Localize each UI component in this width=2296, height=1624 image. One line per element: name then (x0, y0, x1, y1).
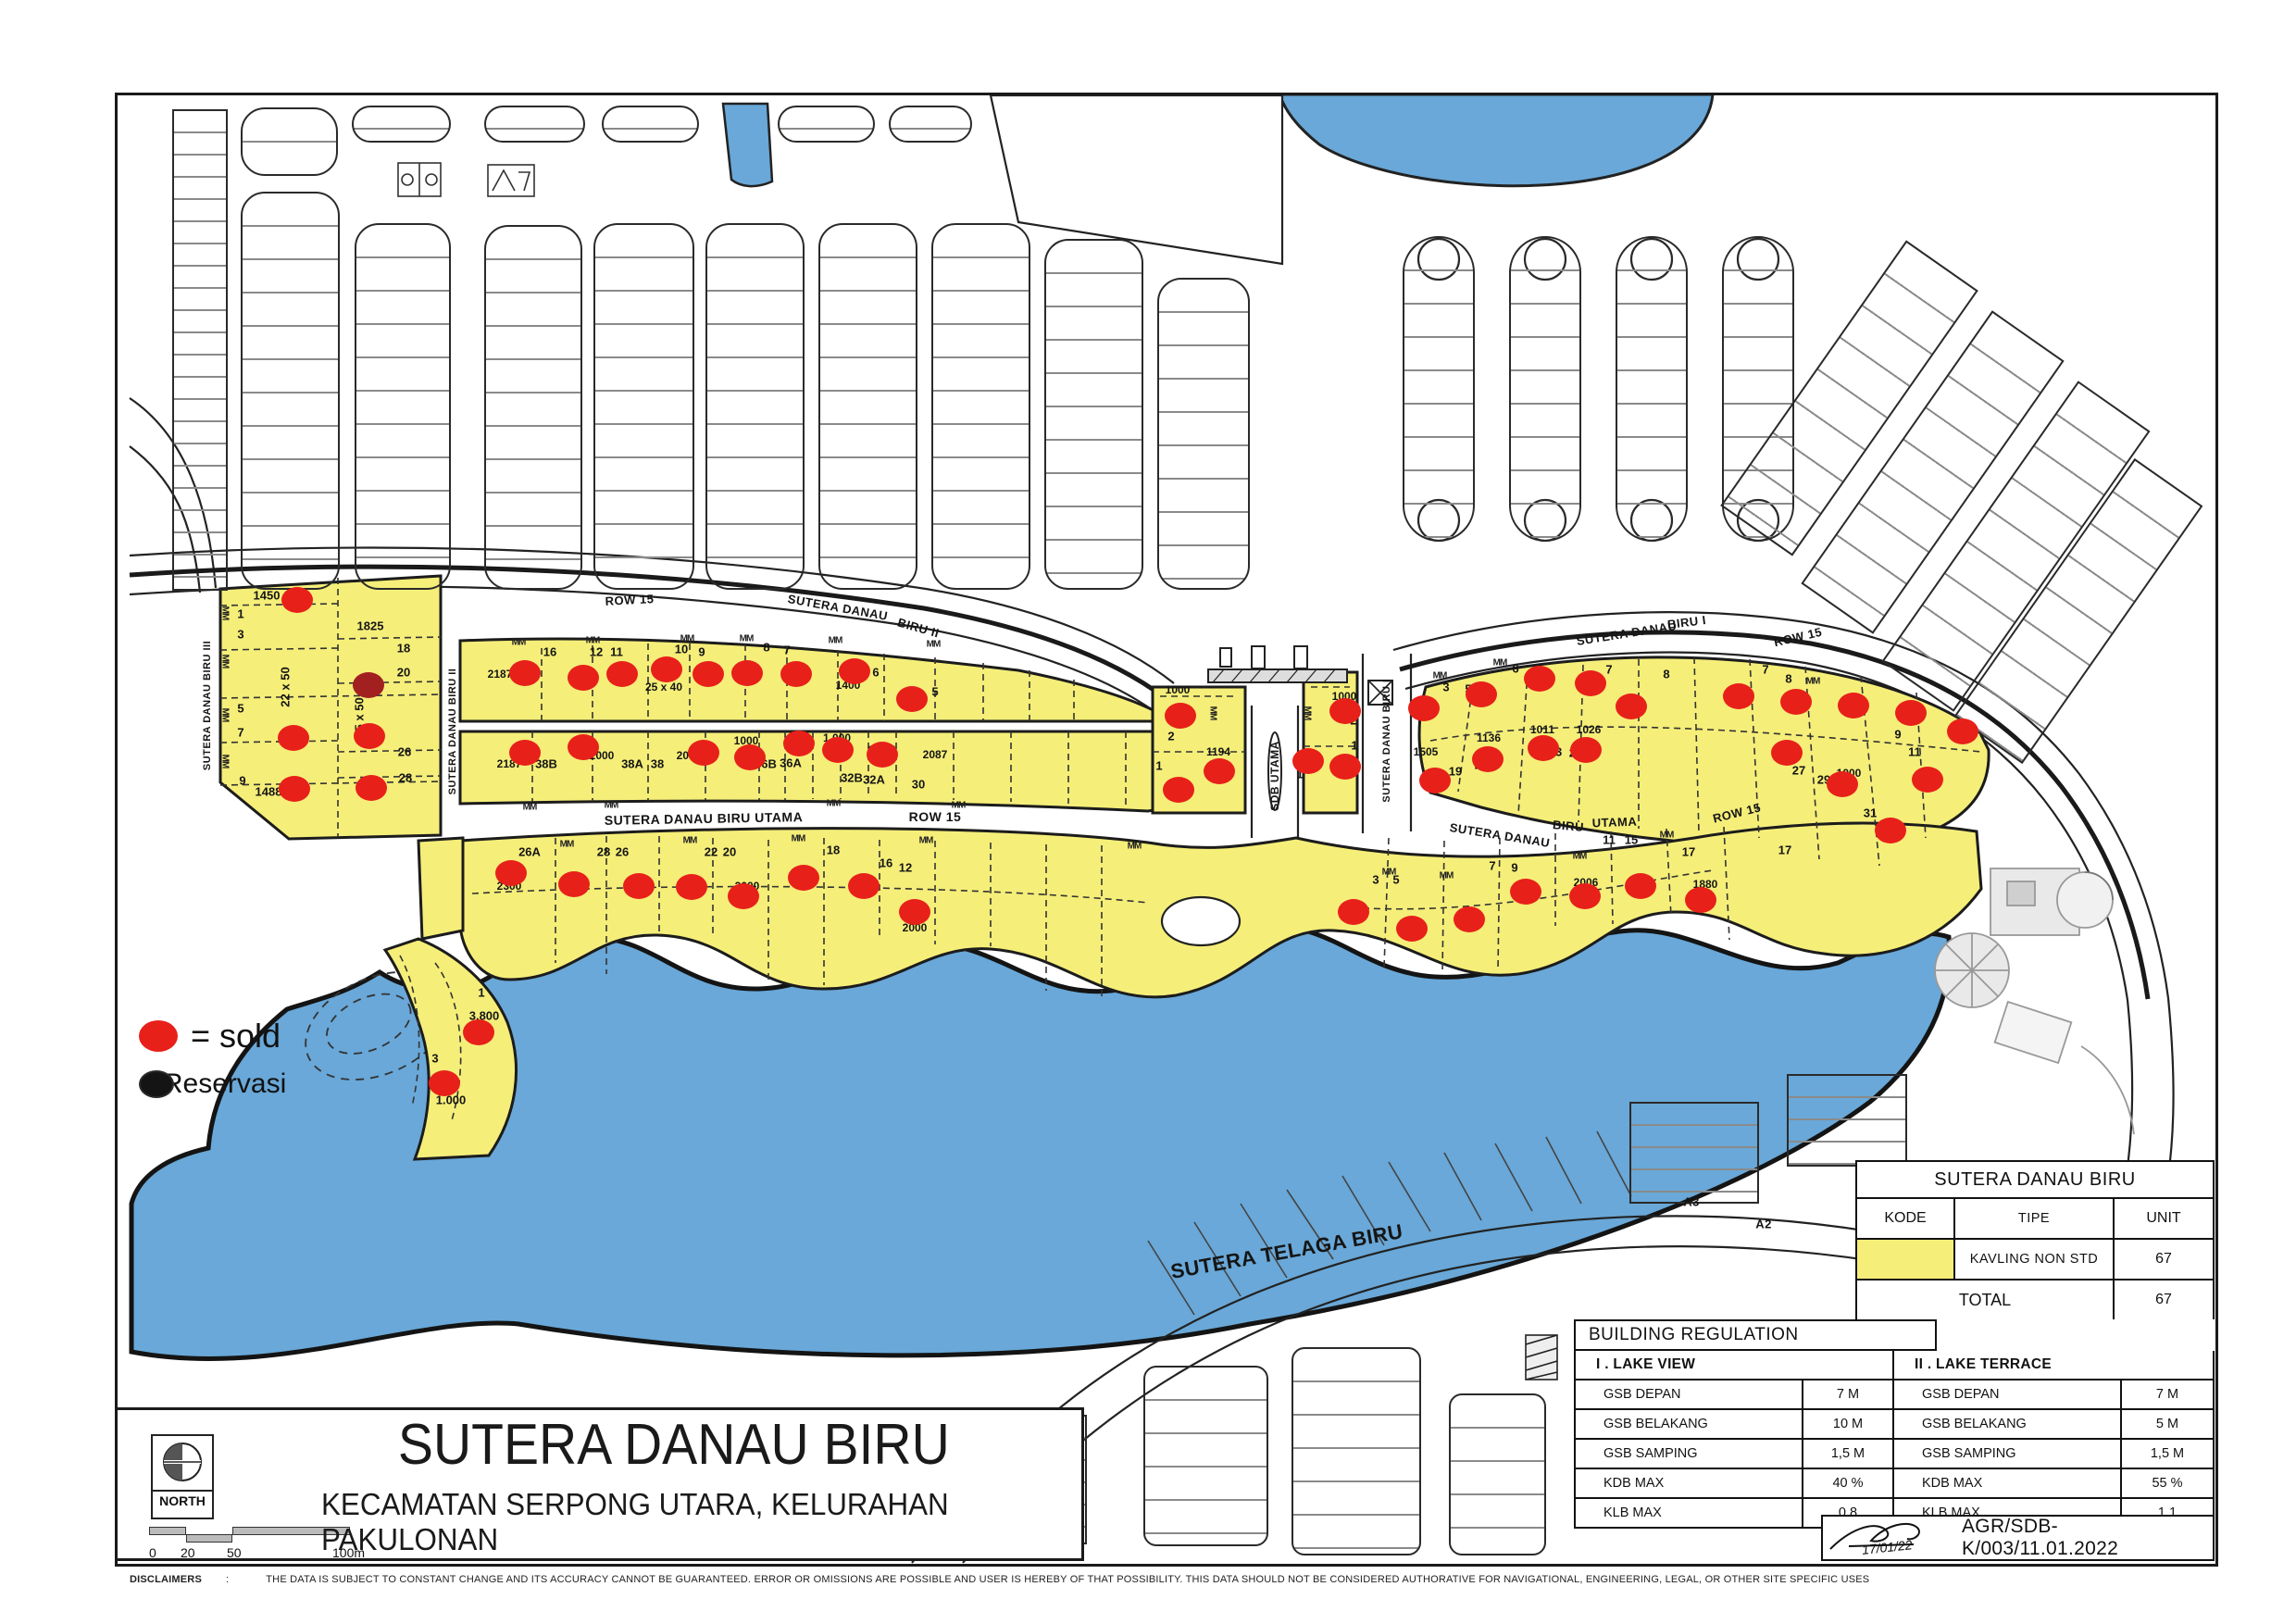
lot-label: 8 (1663, 668, 1669, 681)
lot-label: 9 (239, 774, 245, 788)
lot-label: 7 (783, 643, 790, 657)
lot-label: 22 x 50 (279, 667, 293, 706)
lot-label: 8 (1785, 672, 1791, 686)
sold-marker (731, 660, 763, 686)
sold-marker (1524, 666, 1555, 692)
total-value: 67 (2115, 1280, 2213, 1319)
regulation-row: GSB DEPAN7 M (1894, 1380, 2213, 1410)
project-location: KECAMATAN SERPONG UTARA, KELURAHAN PAKUL… (321, 1487, 1026, 1557)
lot-label: 3 (237, 628, 243, 642)
sold-marker (606, 661, 638, 687)
building-regulation: BUILDING REGULATION I . LAKE VIEWGSB DEP… (1574, 1319, 2215, 1529)
sold-marker (788, 865, 819, 891)
lot-frontage-tick: MM (927, 640, 941, 650)
sold-marker (1838, 693, 1869, 718)
lot-label: 7 (1762, 663, 1768, 677)
lot-label: 18 (397, 642, 410, 656)
signature: 17/01/22 (1823, 1516, 1962, 1560)
lot-label: 1136 (1477, 731, 1501, 744)
sold-marker (1292, 748, 1324, 774)
sold-marker (1204, 758, 1235, 784)
unit-table-title: SUTERA DANAU BIRU (1857, 1162, 2213, 1199)
sold-marker (693, 661, 724, 687)
title-block: NORTH 02050100m SUTERA DANAU BIRU KECAMA… (115, 1407, 1084, 1561)
lot-label: 38 (651, 757, 664, 771)
street-label: SUTERA DANAU BIRU II (447, 668, 458, 795)
street-label: SUTERA DANAU BIRU III (202, 641, 213, 770)
section-name: I . LAKE VIEW (1576, 1351, 1892, 1380)
sold-marker (1163, 777, 1194, 803)
lot-frontage-tick: MM (1128, 842, 1142, 852)
sold-marker (1466, 681, 1497, 707)
lot-label: 7 (1489, 859, 1495, 873)
street-label: SUTERA DANAU (1449, 820, 1552, 850)
approval-box: 17/01/22 AGR/SDB-K/003/11.01.2022 (1821, 1515, 2215, 1561)
regulation-label: GSB BELAKANG (1894, 1410, 2122, 1438)
sold-marker (1616, 693, 1647, 719)
sold-marker (1575, 670, 1606, 696)
lot-label: 8 (763, 641, 769, 655)
lot-label: 1825 (357, 619, 384, 633)
lot-label: 7 (237, 726, 243, 740)
building-regulation-body: I . LAKE VIEWGSB DEPAN7 MGSB BELAKANG10 … (1574, 1351, 2215, 1529)
lot-frontage-tick: MM (1208, 706, 1218, 720)
lot-frontage-tick: MM (523, 803, 537, 813)
lot-label: 2087 (923, 748, 948, 761)
lot-frontage-tick: MM (512, 638, 526, 648)
reservasi-marker-icon (139, 1070, 174, 1098)
sold-marker (568, 665, 599, 691)
lot-label: 26 (398, 745, 411, 759)
building-regulation-title: BUILDING REGULATION (1574, 1319, 1937, 1351)
lot-label: 30 (912, 778, 925, 792)
unit-table-row: KAVLING NON STD 67 (1857, 1240, 2213, 1280)
lot-label: 31 (1864, 806, 1877, 820)
sold-marker (463, 1019, 494, 1045)
regulation-label: GSB SAMPING (1576, 1440, 1803, 1468)
lot-frontage-tick: MM (1806, 677, 1820, 687)
regulation-value: 55 % (2122, 1469, 2213, 1497)
unit-cell: 67 (2115, 1240, 2213, 1279)
sold-marker (356, 775, 387, 801)
col-kode: KODE (1857, 1199, 1955, 1238)
street-label: SUTERA DANAU (787, 592, 889, 623)
regulation-value: 7 M (2122, 1380, 2213, 1408)
legend-sold-label: = sold (191, 1017, 281, 1056)
lot-label: 17 (1778, 843, 1791, 857)
lot-frontage-tick: MM (919, 836, 933, 846)
sold-marker (676, 874, 707, 900)
sold-marker (1528, 735, 1559, 761)
sold-marker (429, 1070, 460, 1096)
lot-label: 20 (397, 666, 410, 680)
street-label: BIRU (1553, 818, 1585, 834)
unit-table-total-row: TOTAL 67 (1857, 1280, 2213, 1319)
lot-label: 1000 (1166, 683, 1191, 696)
lot-label: 12 (590, 645, 603, 659)
sold-marker (1569, 883, 1601, 909)
lot-frontage-tick: MM (560, 840, 574, 850)
lot-label: 19 (1449, 765, 1462, 779)
lot-label: 5 (237, 702, 243, 716)
regulation-label: GSB SAMPING (1894, 1440, 2122, 1468)
sold-marker (509, 660, 541, 686)
sold-marker (1875, 818, 1906, 843)
sold-marker (688, 740, 719, 766)
sold-marker (1329, 754, 1361, 780)
sold-marker (1338, 899, 1369, 925)
lot-frontage-tick: MM (1433, 671, 1447, 681)
lot-frontage-tick: MM (1440, 871, 1454, 881)
lot-label: 11 (1603, 833, 1616, 847)
sold-marker (558, 871, 590, 897)
col-unit: UNIT (2115, 1199, 2213, 1238)
disclaimer-text: THE DATA IS SUBJECT TO CONSTANT CHANGE A… (266, 1574, 1869, 1585)
regulation-row: KDB MAX55 % (1894, 1469, 2213, 1499)
sold-marker (1419, 768, 1451, 793)
title-block-left: NORTH 02050100m (118, 1410, 303, 1558)
lot-label: 15 (1625, 833, 1638, 847)
lot-label: 9 (1511, 861, 1517, 875)
sold-marker (728, 883, 759, 909)
sold-marker (495, 860, 527, 886)
regulation-row: GSB SAMPING1,5 M (1576, 1440, 1892, 1469)
sold-marker (839, 658, 870, 684)
lot-label: 11 (1908, 745, 1921, 759)
kavling-color-swatch (1857, 1240, 1953, 1279)
regulation-label: GSB DEPAN (1576, 1380, 1803, 1408)
street-label: ROW 15 (909, 809, 962, 824)
site-plan-page: ROW 15SUTERA DANAUBIRU IISUTERA DANAUBIR… (0, 0, 2296, 1624)
street-label: ROW 15 (1712, 800, 1763, 825)
project-title: SUTERA DANAU BIRU (398, 1412, 950, 1478)
regulation-section: II . LAKE TERRACEGSB DEPAN7 MGSB BELAKAN… (1894, 1351, 2213, 1527)
lot-frontage-tick: MM (586, 636, 600, 646)
lot-label: 1 (237, 607, 243, 621)
sold-marker (1723, 683, 1754, 709)
sold-marker (354, 723, 385, 749)
lot-label: 1011 (1530, 723, 1554, 736)
sold-marker (568, 734, 599, 760)
lot-label: 9 (1894, 728, 1901, 742)
lot-frontage-tick: MM (220, 755, 231, 768)
sold-marker (899, 899, 930, 925)
lot-label: 9 (698, 645, 705, 659)
scale-tick: 0 (149, 1545, 156, 1560)
lot-frontage-tick: MM (220, 606, 231, 620)
lot-label: 25 x 40 (645, 681, 682, 693)
lot-label: 27 (1792, 764, 1805, 778)
sold-marker (1329, 698, 1361, 724)
lot-label: 1 (478, 986, 484, 1000)
sold-marker (651, 656, 682, 682)
lot-label: 1450 (254, 589, 281, 603)
disclaimer-separator: : (226, 1574, 229, 1585)
regulation-row: GSB BELAKANG10 M (1576, 1410, 1892, 1440)
lot-label: 32B (841, 771, 863, 785)
sold-marker (1454, 906, 1485, 932)
north-label: NORTH (153, 1490, 212, 1508)
lot-label: 1 (1351, 739, 1357, 753)
lot-frontage-tick: MM (740, 634, 754, 644)
lot-label: 1505 (1414, 745, 1439, 758)
lot-label: 2 (1167, 730, 1174, 743)
regulation-label: KLB MAX (1576, 1499, 1803, 1527)
legend-reservasi-row: = Reservasi (139, 1068, 286, 1100)
street-label: SUTERA TELAGA BIRU (1169, 1219, 1405, 1284)
lot-frontage-tick: MM (1303, 706, 1313, 720)
lot-label: 17 (1682, 845, 1695, 859)
lot-label: 16 (543, 645, 556, 659)
disclaimer-label: DISCLAIMERS (130, 1574, 202, 1585)
lot-frontage-tick: MM (1573, 852, 1587, 862)
lot-label: 3 (1372, 873, 1379, 887)
lot-label: 3 (431, 1052, 438, 1066)
street-label: ROW 15 (1773, 625, 1824, 650)
col-tipe: TIPE (1955, 1199, 2115, 1238)
sold-marker (1570, 737, 1602, 763)
street-label: ROW 15 (605, 592, 655, 608)
lot-label: 1026 (1577, 723, 1602, 736)
sold-marker (734, 744, 766, 770)
street-label: SUTERA DANAU (1576, 618, 1678, 648)
unit-summary-table: SUTERA DANAU BIRU KODE TIPE UNIT KAVLING… (1855, 1160, 2215, 1321)
sold-marker (780, 661, 812, 687)
regulation-row: KDB MAX40 % (1576, 1469, 1892, 1499)
lot-label: 18 (827, 843, 840, 857)
lot-label: 11 (610, 645, 623, 659)
regulation-value: 7 M (1803, 1380, 1892, 1408)
lot-frontage-tick: MM (792, 834, 805, 844)
sold-marker (1895, 700, 1927, 726)
sold-marker (1912, 767, 1943, 793)
regulation-value: 5 M (2122, 1410, 2213, 1438)
lot-label: 3 (1442, 681, 1449, 694)
sold-marker (783, 731, 815, 756)
lot-frontage-tick: MM (605, 801, 618, 811)
regulation-value: 1,5 M (2122, 1440, 2213, 1468)
legend: = sold = Reservasi (139, 1017, 286, 1113)
street-label: A2 (1755, 1218, 1772, 1231)
regulation-row: GSB BELAKANG5 M (1894, 1410, 2213, 1440)
lot-label: 1 (1155, 759, 1162, 773)
lot-label: 5 (931, 685, 938, 699)
scale-tick: 20 (181, 1545, 195, 1560)
lot-frontage-tick: MM (827, 799, 841, 809)
lot-label: 38A (621, 757, 643, 771)
regulation-row: GSB DEPAN7 M (1576, 1380, 1892, 1410)
sold-marker (509, 740, 541, 766)
sold-marker (1771, 740, 1803, 766)
lot-label: 6 (1512, 662, 1518, 676)
lot-frontage-tick: MM (952, 801, 966, 811)
section-name: II . LAKE TERRACE (1894, 1351, 2213, 1380)
regulation-label: KDB MAX (1894, 1469, 2122, 1497)
sold-marker (896, 686, 928, 712)
sold-marker (279, 776, 310, 802)
unit-table-header: KODE TIPE UNIT (1857, 1199, 2213, 1240)
sold-marker (1396, 916, 1428, 942)
regulation-value: 40 % (1803, 1469, 1892, 1497)
lot-label: 20 (723, 845, 736, 859)
sold-marker (822, 737, 854, 763)
lot-label: 1194 (1206, 745, 1230, 758)
lot-label: 28 (399, 771, 412, 785)
regulation-label: GSB BELAKANG (1576, 1410, 1803, 1438)
lot-label: 26A (518, 845, 541, 859)
regulation-value: 1,5 M (1803, 1440, 1892, 1468)
title-block-main: SUTERA DANAU BIRU KECAMATAN SERPONG UTAR… (303, 1410, 1081, 1558)
sold-marker (1165, 703, 1196, 729)
approval-code: AGR/SDB-K/003/11.01.2022 (1962, 1516, 2213, 1560)
lot-label: 16 (880, 856, 892, 870)
sold-marker (623, 873, 655, 899)
lot-frontage-tick: MM (683, 836, 697, 846)
lot-label: 22 (705, 845, 717, 859)
tipe-cell: KAVLING NON STD (1955, 1240, 2115, 1279)
street-label: A3 (1683, 1195, 1700, 1209)
regulation-row: GSB SAMPING1,5 M (1894, 1440, 2213, 1469)
street-label: SUTERA DANAU BIRU I (1381, 679, 1392, 802)
regulation-label: GSB DEPAN (1894, 1380, 2122, 1408)
disclaimer: DISCLAIMERS : THE DATA IS SUBJECT TO CON… (130, 1574, 2203, 1585)
kode-cell (1857, 1240, 1955, 1279)
sold-marker (278, 725, 309, 751)
street-label: BIRU II (896, 615, 941, 640)
sold-marker (281, 587, 313, 613)
lot-label: 7 (1605, 663, 1612, 677)
sold-marker (1625, 873, 1656, 899)
lot-label: 26 (616, 845, 629, 859)
regulation-label: KDB MAX (1576, 1469, 1803, 1497)
sold-marker (848, 873, 880, 899)
north-compass-icon (156, 1436, 208, 1490)
lot-label: 28 (597, 845, 610, 859)
street-label: SDB UTAMA (1268, 741, 1281, 811)
sold-marker-icon (139, 1020, 178, 1052)
total-label: TOTAL (1857, 1280, 2115, 1319)
lot-frontage-tick: MM (1493, 658, 1507, 668)
lot-frontage-tick: MM (680, 634, 694, 644)
lot-label: 12 (899, 861, 912, 875)
lot-label: 6 (872, 666, 879, 680)
lot-label: 10 (675, 643, 688, 656)
scale-tick: 50 (227, 1545, 242, 1560)
sold-marker (1685, 887, 1716, 913)
lot-frontage-tick: MM (1382, 868, 1396, 878)
regulation-value: 10 M (1803, 1410, 1892, 1438)
lot-frontage-tick: MM (220, 708, 231, 722)
street-label: BIRU I (1666, 613, 1707, 631)
sold-marker (1408, 695, 1440, 721)
regulation-section: I . LAKE VIEWGSB DEPAN7 MGSB BELAKANG10 … (1576, 1351, 1894, 1527)
sold-marker (1827, 771, 1858, 797)
sold-marker (1780, 689, 1812, 715)
lot-label: 32A (863, 773, 885, 787)
lot-frontage-tick: MM (1660, 831, 1674, 841)
sold-marker (1947, 718, 1978, 744)
sold-marker (1510, 879, 1541, 905)
lot-label: 36A (780, 756, 802, 770)
street-label: SUTERA DANAU BIRU UTAMA (605, 809, 804, 828)
lot-frontage-tick: MM (220, 655, 231, 668)
north-arrow: NORTH (151, 1434, 214, 1519)
sold-marker (353, 672, 384, 698)
lot-frontage-tick: MM (829, 636, 842, 646)
sold-marker (867, 742, 898, 768)
street-label: UTAMA (1592, 815, 1638, 831)
sold-marker (1472, 746, 1504, 772)
legend-sold-row: = sold (139, 1017, 286, 1056)
